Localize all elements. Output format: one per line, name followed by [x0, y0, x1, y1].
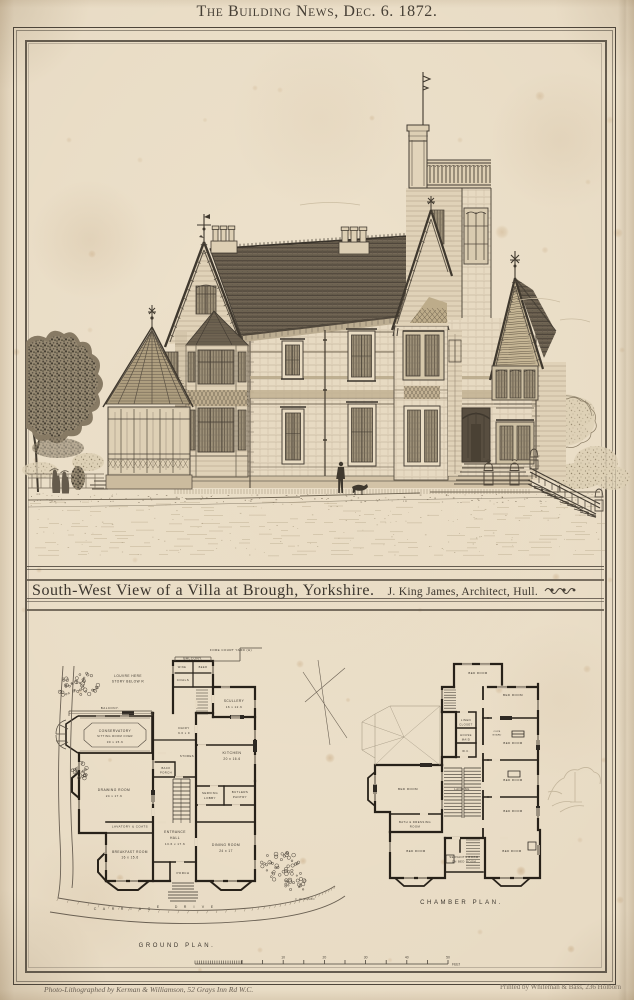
- svg-text:LANDING: LANDING: [454, 787, 470, 791]
- svg-text:CUPB: CUPB: [494, 731, 501, 733]
- svg-text:16 x 12.6: 16 x 12.6: [226, 705, 242, 709]
- svg-text:ROOM: ROOM: [410, 825, 421, 829]
- svg-text:F. W. MASON: F. W. MASON: [295, 897, 314, 901]
- svg-text:10: 10: [281, 956, 285, 960]
- svg-text:50: 50: [446, 956, 450, 960]
- svg-text:W.C.: W.C.: [462, 749, 470, 753]
- svg-text:DINING ROOM: DINING ROOM: [212, 843, 240, 847]
- svg-text:BED ROOM: BED ROOM: [398, 787, 418, 791]
- svg-text:BED ROOM: BED ROOM: [406, 849, 425, 853]
- svg-text:SITTING ROOM OVER: SITTING ROOM OVER: [97, 734, 133, 738]
- svg-text:SCULLERY: SCULLERY: [224, 699, 245, 703]
- svg-text:LOUVRE HERE: LOUVRE HERE: [114, 674, 142, 678]
- svg-text:WINE: WINE: [178, 665, 187, 669]
- svg-text:SERVING: SERVING: [202, 791, 218, 795]
- svg-text:9.6 x 9: 9.6 x 9: [178, 731, 190, 735]
- svg-text:BACK: BACK: [161, 766, 170, 770]
- svg-text:R: R: [184, 905, 187, 909]
- svg-text:KITCHEN: KITCHEN: [223, 751, 242, 755]
- svg-text:I: I: [131, 907, 132, 911]
- svg-text:16 x 15.6: 16 x 15.6: [121, 856, 138, 860]
- svg-text:BEER: BEER: [199, 665, 208, 669]
- svg-text:LAVATORY & COATS: LAVATORY & COATS: [112, 825, 148, 829]
- svg-text:ENTRANCE: ENTRANCE: [164, 830, 186, 834]
- svg-text:BUTLERS: BUTLERS: [232, 790, 248, 794]
- svg-text:BED ROOM: BED ROOM: [503, 693, 523, 697]
- svg-text:BED ROOM: BED ROOM: [503, 741, 522, 745]
- svg-text:BED ROOM: BED ROOM: [502, 849, 521, 853]
- svg-text:20: 20: [323, 956, 327, 960]
- svg-text:E: E: [211, 905, 214, 909]
- svg-text:G: G: [148, 907, 151, 911]
- svg-text:BALCONY.: BALCONY.: [183, 657, 202, 661]
- svg-text:BED ROOM: BED ROOM: [503, 809, 522, 813]
- svg-text:BALCONY.: BALCONY.: [101, 706, 119, 710]
- svg-text:FEET: FEET: [452, 963, 460, 967]
- svg-text:FORE COURT YARD (H): FORE COURT YARD (H): [210, 648, 252, 652]
- svg-text:BREAKFAST ROOM: BREAKFAST ROOM: [112, 850, 148, 854]
- svg-text:30 x 15.6: 30 x 15.6: [107, 740, 123, 744]
- svg-text:30: 30: [364, 956, 368, 960]
- svg-text:40: 40: [405, 956, 409, 960]
- svg-text:BATH & DRESSING: BATH & DRESSING: [399, 820, 431, 824]
- svg-text:BOARD: BOARD: [493, 734, 502, 737]
- svg-text:E: E: [157, 905, 160, 909]
- svg-text:HALL: HALL: [170, 836, 180, 840]
- svg-text:V: V: [202, 905, 205, 909]
- svg-text:I: I: [194, 905, 195, 909]
- svg-text:ON BED ROOM: ON BED ROOM: [452, 860, 477, 864]
- svg-text:LOBBY: LOBBY: [204, 796, 216, 800]
- svg-text:CLOSET: CLOSET: [459, 723, 472, 727]
- svg-text:LINEN: LINEN: [461, 718, 471, 722]
- svg-text:PORCH: PORCH: [176, 871, 189, 875]
- svg-text:DAIRY: DAIRY: [178, 726, 189, 730]
- svg-text:STORES: STORES: [180, 754, 194, 758]
- svg-text:C: C: [94, 907, 97, 911]
- svg-text:13.6 x 17.6: 13.6 x 17.6: [165, 842, 185, 846]
- svg-text:MAID: MAID: [462, 738, 471, 742]
- svg-text:SERVANTS ROOM: SERVANTS ROOM: [449, 855, 479, 859]
- svg-text:COALS: COALS: [177, 678, 189, 682]
- svg-text:STORY BELOW R: STORY BELOW R: [112, 680, 144, 684]
- svg-text:CONSERVATORY: CONSERVATORY: [99, 729, 132, 733]
- svg-text:HOUSE: HOUSE: [460, 733, 472, 737]
- svg-text:R: R: [121, 907, 124, 911]
- svg-text:PANTRY: PANTRY: [233, 795, 247, 799]
- svg-text:BED ROOM: BED ROOM: [468, 671, 487, 675]
- svg-text:24 x 17.6: 24 x 17.6: [106, 794, 122, 798]
- svg-text:PORCH: PORCH: [160, 771, 172, 775]
- svg-text:R: R: [112, 907, 115, 911]
- svg-text:24 x 17: 24 x 17: [219, 849, 233, 853]
- svg-text:A: A: [139, 907, 142, 911]
- svg-text:20 x 16.6: 20 x 16.6: [223, 757, 240, 761]
- svg-text:D: D: [175, 905, 178, 909]
- svg-text:A: A: [103, 907, 106, 911]
- svg-text:DRAWING ROOM: DRAWING ROOM: [98, 788, 130, 792]
- svg-text:BED ROOM: BED ROOM: [503, 778, 522, 782]
